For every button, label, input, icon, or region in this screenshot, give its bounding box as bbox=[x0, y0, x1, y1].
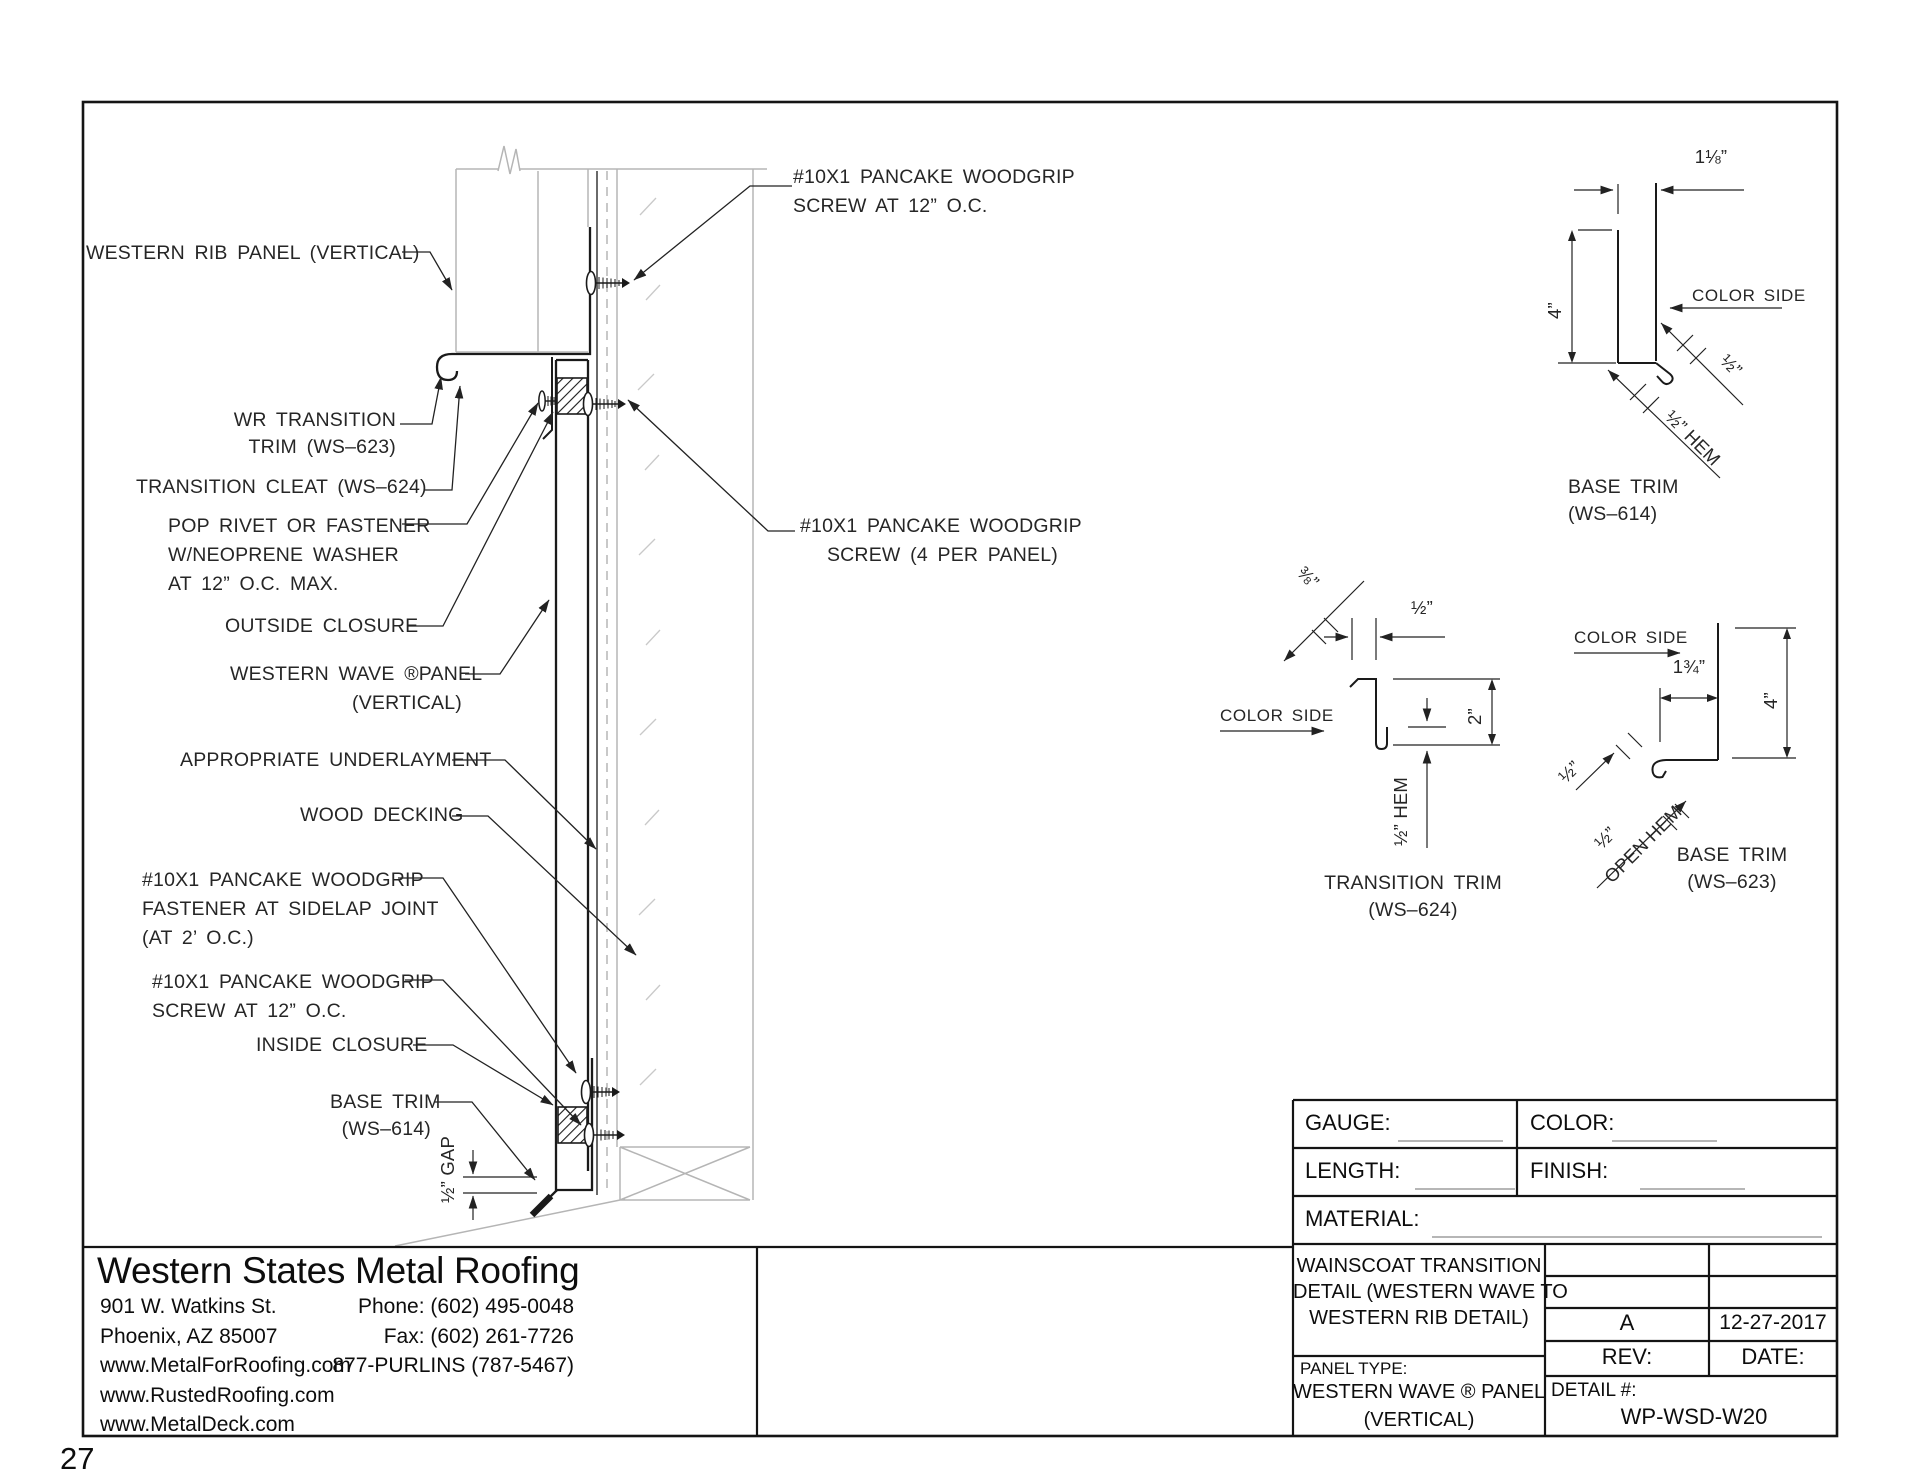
callout-line: SCREW AT 12” O.C. bbox=[793, 192, 1073, 221]
gap-dimension bbox=[463, 1150, 537, 1220]
sheet-title-line: WAINSCOAT TRANSITION bbox=[1293, 1253, 1545, 1279]
callout-western-wave-panel: WESTERN WAVE ®PANEL (VERTICAL) bbox=[230, 660, 462, 718]
callout-line: WR TRANSITION bbox=[232, 407, 396, 434]
screw-top bbox=[587, 272, 631, 295]
wr-transition-trim-profile bbox=[437, 227, 590, 380]
blank-field-lines bbox=[1398, 1141, 1822, 1237]
detail-title-line: (WS–623) bbox=[1646, 869, 1818, 896]
outside-closure-block bbox=[557, 378, 587, 414]
callout-line: BASE TRIM bbox=[330, 1089, 431, 1116]
callout-screw-4-per-panel: #10X1 PANCAKE WOODGRIP SCREW (4 PER PANE… bbox=[800, 512, 1058, 570]
company-website: www.RustedRoofing.com bbox=[100, 1381, 351, 1411]
ws614-color-side: COLOR SIDE bbox=[1692, 286, 1806, 306]
panel-type-line: WESTERN WAVE ® PANEL bbox=[1293, 1378, 1545, 1406]
ws624-dim-height: 2” bbox=[1464, 708, 1486, 725]
page-number: 27 bbox=[60, 1441, 94, 1477]
company-address-line: Phoenix, AZ 85007 bbox=[100, 1322, 351, 1352]
gauge-label: GAUGE: bbox=[1305, 1110, 1391, 1136]
detail-ws614 bbox=[1558, 183, 1782, 478]
company-address: 901 W. Watkins St. Phoenix, AZ 85007 www… bbox=[100, 1292, 351, 1440]
company-website: www.MetalDeck.com bbox=[100, 1410, 351, 1440]
rev-value: A bbox=[1545, 1310, 1709, 1336]
finish-label: FINISH: bbox=[1530, 1158, 1608, 1184]
detail-title-line: BASE TRIM bbox=[1568, 474, 1768, 501]
callout-pop-rivet: POP RIVET OR FASTENER W/NEOPRENE WASHER … bbox=[168, 512, 408, 599]
drawing-sheet: WESTERN RIB PANEL (VERTICAL) #10X1 PANCA… bbox=[0, 0, 1920, 1484]
callout-screw-top: #10X1 PANCAKE WOODGRIP SCREW AT 12” O.C. bbox=[793, 163, 1073, 221]
ws623-color-side: COLOR SIDE bbox=[1574, 628, 1688, 648]
ws614-dim-height: 4” bbox=[1544, 302, 1566, 319]
date-value: 12-27-2017 bbox=[1709, 1311, 1837, 1335]
ws624-title: TRANSITION TRIM (WS–624) bbox=[1318, 870, 1508, 924]
rev-label: REV: bbox=[1545, 1344, 1709, 1370]
company-fax: Fax: (602) 261-7726 bbox=[322, 1322, 574, 1352]
callout-wood-decking: WOOD DECKING bbox=[300, 801, 448, 830]
screw-transition bbox=[584, 393, 627, 416]
callout-line: WESTERN RIB PANEL (VERTICAL) bbox=[86, 239, 398, 268]
callout-wr-transition-trim: WR TRANSITION TRIM (WS–623) bbox=[232, 407, 396, 461]
callout-line: (WS–614) bbox=[330, 1116, 431, 1143]
company-address-line: 901 W. Watkins St. bbox=[100, 1292, 351, 1322]
company-purlins-line: 877-PURLINS (787-5467) bbox=[322, 1351, 574, 1381]
callout-underlayment: APPROPRIATE UNDERLAYMENT bbox=[180, 746, 448, 775]
gap-dimension-label: ½” GAP bbox=[437, 1136, 459, 1203]
callout-line: (AT 2’ O.C.) bbox=[142, 924, 400, 953]
panel-type-line: (VERTICAL) bbox=[1293, 1406, 1545, 1434]
sheet-title-line: WESTERN RIB DETAIL) bbox=[1293, 1305, 1545, 1331]
detail-title-line: BASE TRIM bbox=[1646, 842, 1818, 869]
length-label: LENGTH: bbox=[1305, 1158, 1400, 1184]
panel-type-value: WESTERN WAVE ® PANEL (VERTICAL) bbox=[1293, 1378, 1545, 1434]
company-name: Western States Metal Roofing bbox=[97, 1250, 579, 1292]
callout-western-rib-panel: WESTERN RIB PANEL (VERTICAL) bbox=[86, 239, 398, 268]
callout-line: SCREW AT 12” O.C. bbox=[152, 997, 410, 1026]
screw-sidelap bbox=[582, 1081, 621, 1104]
callout-outside-closure: OUTSIDE CLOSURE bbox=[225, 612, 403, 641]
detail-number-label: DETAIL #: bbox=[1551, 1380, 1637, 1402]
callout-line: WOOD DECKING bbox=[300, 801, 448, 830]
ws624-dim-top: ½” bbox=[1400, 597, 1444, 619]
callout-line: OUTSIDE CLOSURE bbox=[225, 612, 403, 641]
callout-line: (VERTICAL) bbox=[230, 689, 462, 718]
color-label: COLOR: bbox=[1530, 1110, 1614, 1136]
callout-line: #10X1 PANCAKE WOODGRIP bbox=[142, 866, 400, 895]
callout-sidelap-fastener: #10X1 PANCAKE WOODGRIP FASTENER AT SIDEL… bbox=[142, 866, 400, 953]
callout-line: AT 12” O.C. MAX. bbox=[168, 570, 408, 599]
inside-closure-block bbox=[558, 1107, 587, 1143]
detail-title-line: TRANSITION TRIM bbox=[1318, 870, 1508, 897]
detail-title-line: (WS–624) bbox=[1318, 897, 1508, 924]
detail-number-value: WP-WSD-W20 bbox=[1560, 1404, 1828, 1430]
callout-line: WESTERN WAVE ®PANEL bbox=[230, 660, 462, 689]
callout-line: APPROPRIATE UNDERLAYMENT bbox=[180, 746, 448, 775]
callout-inside-closure: INSIDE CLOSURE bbox=[256, 1031, 409, 1060]
company-website: www.MetalForRoofing.com bbox=[100, 1351, 351, 1381]
callout-transition-cleat: TRANSITION CLEAT (WS–624) bbox=[136, 473, 422, 502]
ws614-dim-top: 1⅛” bbox=[1686, 146, 1736, 168]
callout-line: INSIDE CLOSURE bbox=[256, 1031, 409, 1060]
callout-line: TRANSITION CLEAT (WS–624) bbox=[136, 473, 422, 502]
callout-base-trim-614: BASE TRIM (WS–614) bbox=[330, 1089, 431, 1143]
base-trim-hem-foot bbox=[532, 1196, 551, 1215]
callout-line: #10X1 PANCAKE WOODGRIP bbox=[793, 163, 1073, 192]
detail-title-line: (WS–614) bbox=[1568, 501, 1768, 528]
date-label: DATE: bbox=[1709, 1344, 1837, 1370]
material-label: MATERIAL: bbox=[1305, 1206, 1420, 1232]
callout-line: FASTENER AT SIDELAP JOINT bbox=[142, 895, 400, 924]
callout-line: SCREW (4 PER PANEL) bbox=[800, 541, 1058, 570]
company-phone: Phone: (602) 495-0048 bbox=[322, 1292, 574, 1322]
callout-line: #10X1 PANCAKE WOODGRIP bbox=[800, 512, 1058, 541]
ws624-dim-hem: ½” HEM bbox=[1390, 777, 1412, 846]
ws624-color-side: COLOR SIDE bbox=[1220, 706, 1334, 726]
ws623-dim-height: 4” bbox=[1760, 692, 1782, 709]
callout-screw-bottom: #10X1 PANCAKE WOODGRIP SCREW AT 12” O.C. bbox=[152, 968, 410, 1026]
ws623-dim-top: 1¾” bbox=[1662, 656, 1716, 678]
callout-line: #10X1 PANCAKE WOODGRIP bbox=[152, 968, 410, 997]
sheet-title: WAINSCOAT TRANSITION DETAIL (WESTERN WAV… bbox=[1293, 1253, 1545, 1331]
pop-rivet bbox=[539, 391, 556, 411]
callout-line: TRIM (WS–623) bbox=[232, 434, 396, 461]
screw-base bbox=[585, 1124, 626, 1147]
sheet-title-line: DETAIL (WESTERN WAVE TO bbox=[1293, 1279, 1545, 1305]
panel-type-label: PANEL TYPE: bbox=[1300, 1359, 1407, 1379]
company-contact: Phone: (602) 495-0048 Fax: (602) 261-772… bbox=[322, 1292, 574, 1381]
ws614-title: BASE TRIM (WS–614) bbox=[1568, 474, 1768, 528]
callout-line: POP RIVET OR FASTENER bbox=[168, 512, 408, 541]
ws623-title: BASE TRIM (WS–623) bbox=[1646, 842, 1818, 896]
callout-line: W/NEOPRENE WASHER bbox=[168, 541, 408, 570]
